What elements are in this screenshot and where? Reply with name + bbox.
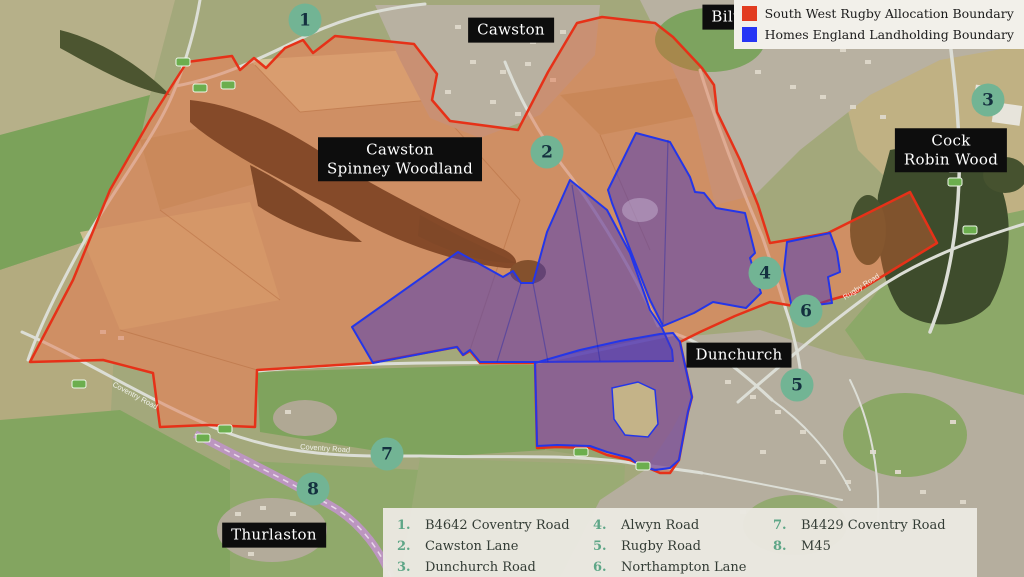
key-label: Northampton Lane — [621, 560, 746, 575]
key-number: 4. — [593, 518, 609, 533]
map-marker-8: 8 — [297, 473, 330, 506]
street-label: Coventry Road — [111, 380, 159, 411]
map-marker-2: 2 — [531, 136, 564, 169]
place-label-cawston-spinney-woodland: Cawston Spinney Woodland — [318, 137, 482, 181]
key-number: 1. — [397, 518, 413, 533]
place-label-cawston: Cawston — [468, 18, 554, 43]
place-label-text: Spinney Woodland — [327, 159, 473, 178]
key-number: 5. — [593, 539, 609, 554]
key-label: M45 — [801, 539, 831, 554]
legend-label: South West Rugby Allocation Boundary — [765, 6, 1014, 21]
key-label: Rugby Road — [621, 539, 701, 554]
key-item: 7. B4429 Coventry Road — [773, 516, 971, 535]
allocation-swatch-icon — [742, 6, 757, 21]
key-number: 3. — [397, 560, 413, 575]
key-number: 7. — [773, 518, 789, 533]
landholding-swatch-icon — [742, 27, 757, 42]
road-key-panel: 1. B4642 Coventry Road 2. Cawston Lane 3… — [383, 508, 977, 577]
place-label-cock-robin-wood: Cock Robin Wood — [895, 128, 1007, 172]
place-label-text: Cawston — [477, 21, 545, 40]
legend-label: Homes England Landholding Boundary — [765, 27, 1014, 42]
key-item: 4. Alwyn Road — [593, 516, 773, 535]
key-number: 2. — [397, 539, 413, 554]
place-label-text: Dunchurch — [695, 346, 782, 365]
map-marker-7: 7 — [371, 438, 404, 471]
key-label: Dunchurch Road — [425, 560, 536, 575]
key-item: 2. Cawston Lane — [397, 537, 593, 556]
map-marker-6: 6 — [790, 295, 823, 328]
place-label-text: Cawston — [327, 140, 473, 159]
legend-item-allocation: South West Rugby Allocation Boundary — [742, 6, 1014, 21]
key-item: 1. B4642 Coventry Road — [397, 516, 593, 535]
map-marker-1: 1 — [289, 4, 322, 37]
key-number: 6. — [593, 560, 609, 575]
key-label: B4642 Coventry Road — [425, 518, 570, 533]
key-label: B4429 Coventry Road — [801, 518, 946, 533]
place-label-dunchurch: Dunchurch — [686, 343, 791, 368]
key-item: 3. Dunchurch Road — [397, 558, 593, 577]
place-label-text: Robin Wood — [904, 150, 998, 169]
key-item: 5. Rugby Road — [593, 537, 773, 556]
key-number: 8. — [773, 539, 789, 554]
map-canvas: Coventry Road Coventry Road Rugby Road C… — [0, 0, 1024, 577]
key-item: 8. M45 — [773, 537, 971, 556]
key-item: 6. Northampton Lane — [593, 558, 773, 577]
place-label-text: Thurlaston — [231, 526, 317, 545]
legend-item-landholding: Homes England Landholding Boundary — [742, 27, 1014, 42]
map-marker-4: 4 — [749, 257, 782, 290]
satellite-map: Coventry Road Coventry Road Rugby Road — [0, 0, 1024, 577]
map-marker-5: 5 — [781, 369, 814, 402]
place-label-text: Cock — [904, 131, 998, 150]
place-label-thurlaston: Thurlaston — [222, 523, 326, 548]
map-marker-3: 3 — [972, 84, 1005, 117]
key-label: Cawston Lane — [425, 539, 519, 554]
legend: South West Rugby Allocation Boundary Hom… — [734, 0, 1024, 49]
key-label: Alwyn Road — [621, 518, 699, 533]
